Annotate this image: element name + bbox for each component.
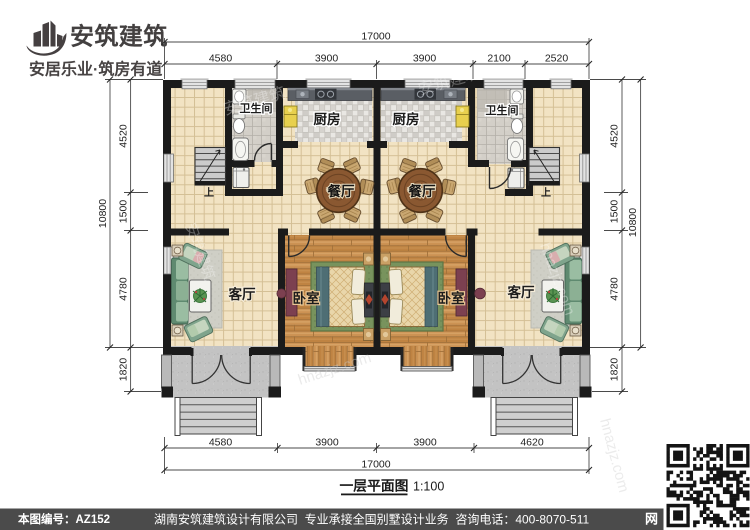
svg-text:本图编号：AZ152: 本图编号：AZ152	[18, 512, 110, 526]
svg-text:餐厅: 餐厅	[408, 183, 436, 199]
svg-text:1500: 1500	[118, 200, 130, 224]
svg-text:4520: 4520	[609, 124, 621, 148]
svg-text:2520: 2520	[545, 53, 569, 65]
svg-text:安居乐业·筑房有道: 安居乐业·筑房有道	[29, 60, 162, 79]
svg-text:卫生间: 卫生间	[240, 101, 273, 115]
svg-text:4780: 4780	[609, 277, 621, 301]
svg-text:一层平面图: 一层平面图	[340, 479, 409, 494]
svg-text:1820: 1820	[118, 358, 130, 382]
svg-text:17000: 17000	[361, 31, 390, 43]
svg-text:10800: 10800	[97, 199, 109, 228]
svg-text:4520: 4520	[118, 124, 130, 148]
svg-text:客厅: 客厅	[228, 286, 256, 302]
svg-text:湖南安筑建筑设计有限公司 专业承接全国别墅设计业务 咨询: 湖南安筑建筑设计有限公司 专业承接全国别墅设计业务 咨询电话：400-8070-…	[154, 512, 590, 527]
svg-text:卧室: 卧室	[438, 290, 465, 306]
svg-text:餐厅: 餐厅	[327, 183, 355, 199]
svg-text:4780: 4780	[118, 277, 130, 301]
svg-text:厨房: 厨房	[314, 111, 341, 127]
svg-text:10800: 10800	[627, 208, 639, 237]
svg-text:厨房: 厨房	[393, 111, 420, 127]
svg-text:卫生间: 卫生间	[486, 103, 519, 117]
svg-text:17000: 17000	[361, 459, 390, 471]
svg-text:3900: 3900	[315, 53, 339, 65]
svg-text:上: 上	[541, 186, 551, 199]
svg-text:3900: 3900	[413, 53, 437, 65]
svg-text:客厅: 客厅	[507, 284, 536, 300]
svg-text:3900: 3900	[413, 437, 437, 449]
svg-text:网: 网	[645, 512, 658, 527]
svg-text:4620: 4620	[520, 437, 544, 449]
svg-text:4580: 4580	[209, 53, 233, 65]
svg-text:2100: 2100	[487, 53, 511, 65]
svg-text:安筑建筑: 安筑建筑	[70, 23, 168, 51]
svg-text:4580: 4580	[209, 437, 233, 449]
svg-text:1:100: 1:100	[413, 480, 444, 494]
svg-text:上: 上	[204, 186, 214, 199]
svg-text:卧室: 卧室	[293, 290, 320, 306]
svg-text:1820: 1820	[609, 358, 621, 382]
svg-text:3900: 3900	[315, 437, 339, 449]
svg-text:1500: 1500	[609, 200, 621, 224]
